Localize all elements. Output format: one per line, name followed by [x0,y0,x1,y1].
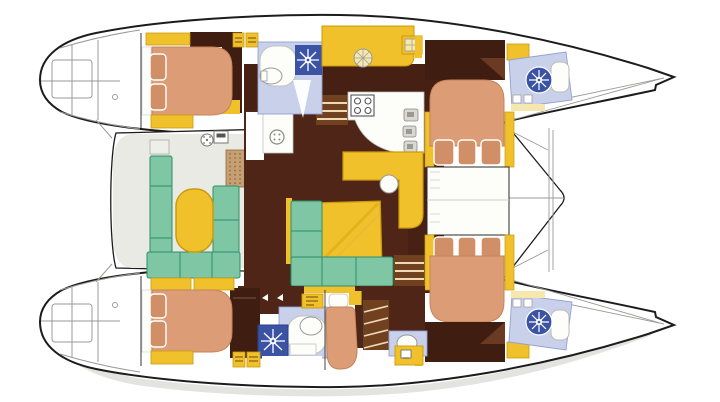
shower-rose-sun-icon [526,67,552,93]
coachroof-deck [322,26,422,67]
berth-trim [146,33,190,45]
berth-trim [505,235,514,290]
salon-cabinet [263,111,293,153]
winch-icon [201,134,213,146]
square-deck-hatch-icon [233,352,245,367]
salon-table [318,201,382,263]
trim [349,291,362,305]
toilet-icon [300,317,322,335]
fixture [524,95,532,103]
pillow [458,140,476,165]
trim [511,104,545,111]
square-deck-hatch-icon [233,33,244,47]
floorplan-canvas [0,0,720,402]
pillow [150,294,166,318]
vanity [290,344,316,355]
shower-rose-sun-icon [258,325,288,358]
companionway-steps-starboard [394,255,425,289]
pillow [434,140,454,165]
square-deck-hatch-icon [395,346,423,365]
pillow [481,140,501,165]
wc-starboard [389,331,427,365]
fixture [513,95,521,103]
berth-trim [151,115,193,128]
cockpit [113,131,250,278]
cockpit-bench-aft [147,252,240,278]
fixture [513,299,521,307]
toilet-icon [551,310,569,340]
salon-dinette [286,198,395,293]
pillow [150,321,166,347]
square-deck-hatch-icon [246,33,258,47]
toilet-tank [261,71,267,81]
bath-locker [262,356,322,369]
trim [511,291,545,298]
nav-stool [380,175,398,193]
berth-trim [194,278,234,290]
shower-rose-sun-icon [526,309,552,335]
square-deck-hatch-icon [247,352,260,367]
dressing-floor [427,167,509,235]
fwd-dressing-area [427,167,509,235]
catamaran-floorplan [0,0,720,402]
pillow [150,54,166,80]
hull-stairs [363,300,389,350]
cockpit-table [176,189,213,252]
cabin-fwd-port-berth [425,80,514,167]
cockpit-locker [150,140,169,154]
berth-mattress [326,307,357,369]
pillow [150,84,166,110]
hull-starboard-interior [230,286,427,370]
cabin-fwd-starboard-berth [425,235,514,322]
toilet-icon [551,62,569,92]
shower-rose-sun-icon [295,45,322,75]
helm-instrument-icon [214,131,228,143]
fixture [524,299,532,307]
round-deck-hatch-icon [354,49,372,67]
double-berth [430,256,504,322]
trim [415,36,422,58]
double-berth [430,80,504,146]
berth-trim [505,112,514,167]
stove-burners-icon [351,95,374,116]
pillow [329,294,348,307]
galley-appliances [403,109,418,152]
salon-door [246,112,264,160]
berth-trim [151,278,191,290]
berth-trim [151,351,193,364]
square-deck-hatch-icon [302,294,323,308]
winch-icon [270,130,284,144]
